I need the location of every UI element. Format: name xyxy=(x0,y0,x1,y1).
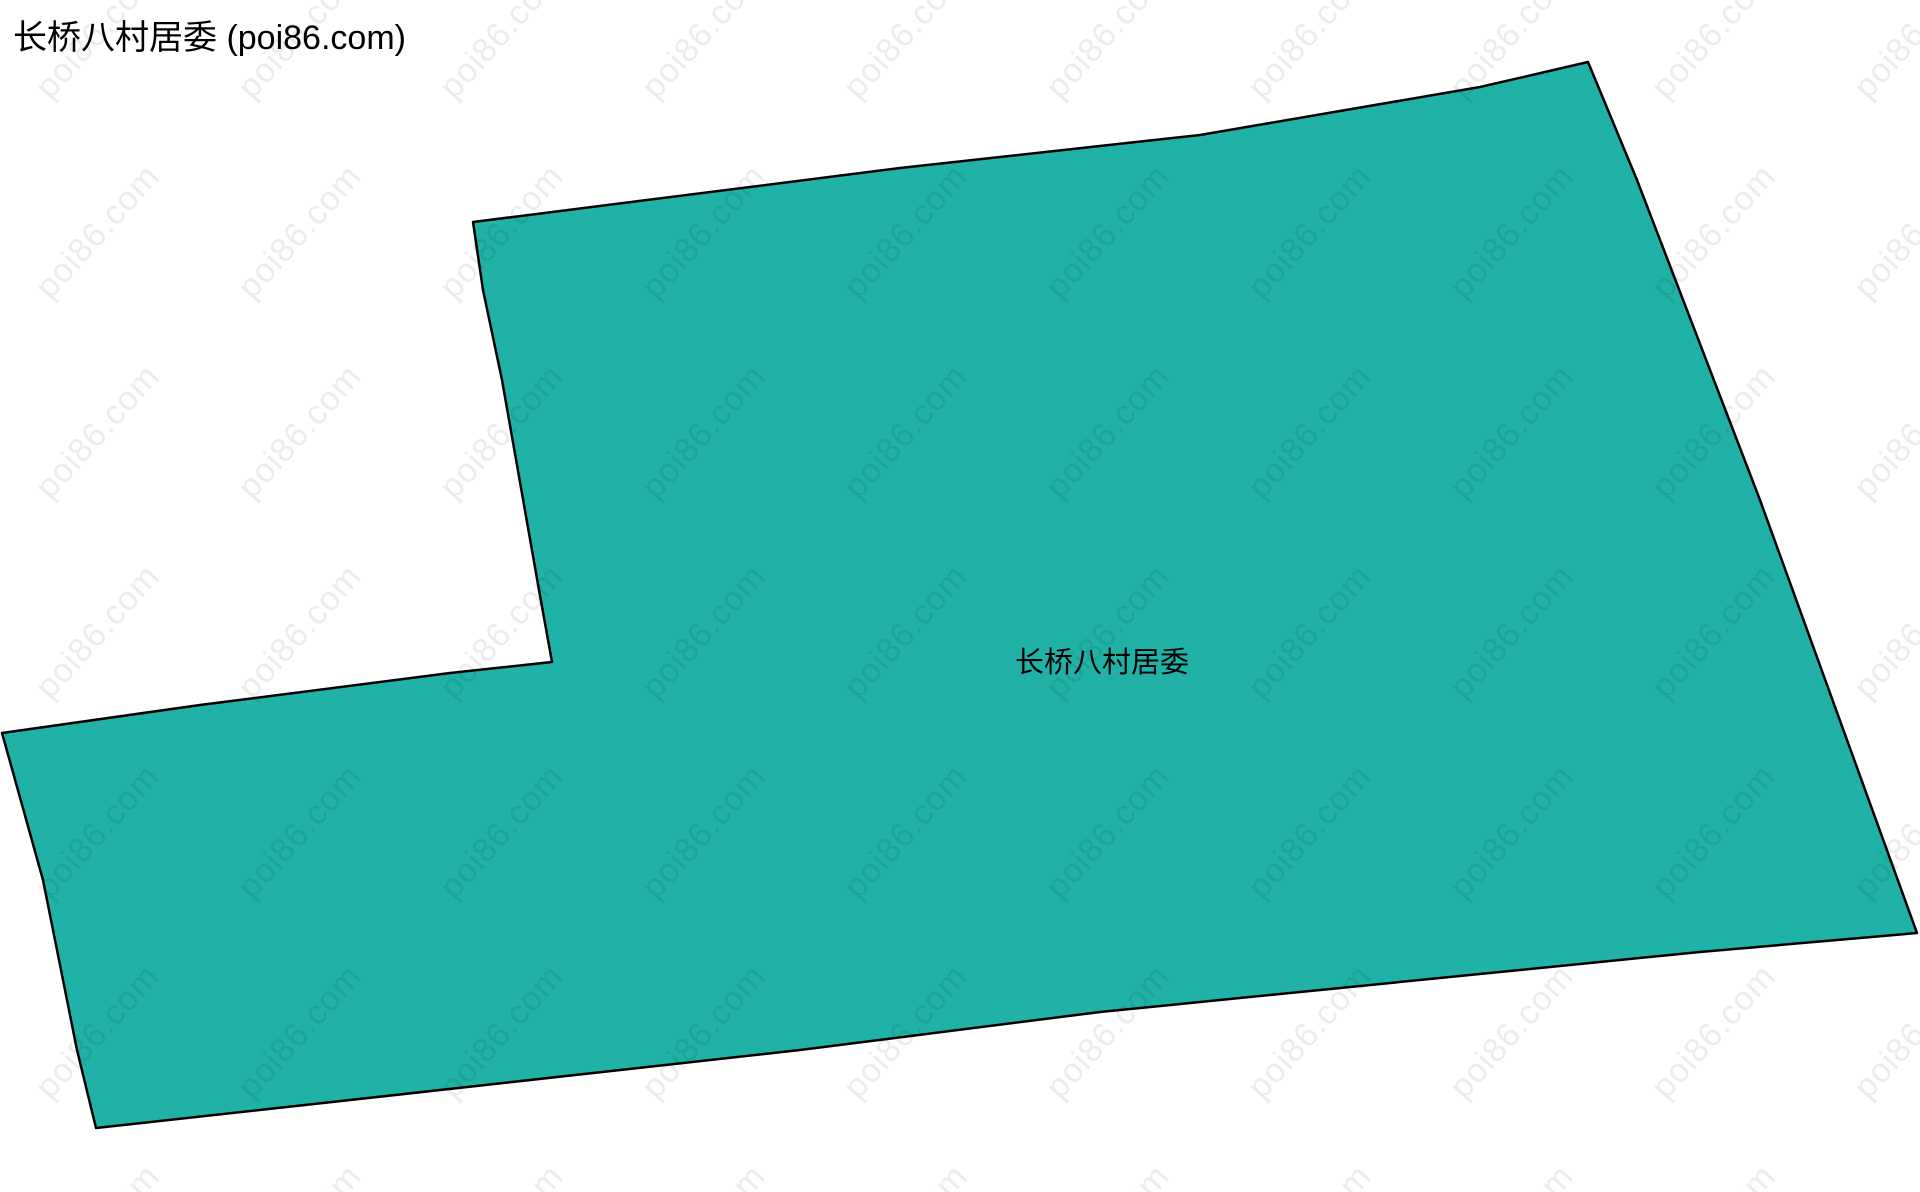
boundary-map xyxy=(0,0,1920,1192)
page-title: 长桥八村居委 (poi86.com) xyxy=(13,10,406,59)
map-page: poi86.compoi86.compoi86.compoi86.compoi8… xyxy=(0,0,1920,1192)
region-label: 长桥八村居委 xyxy=(1015,639,1189,681)
region-polygon xyxy=(2,62,1917,1128)
